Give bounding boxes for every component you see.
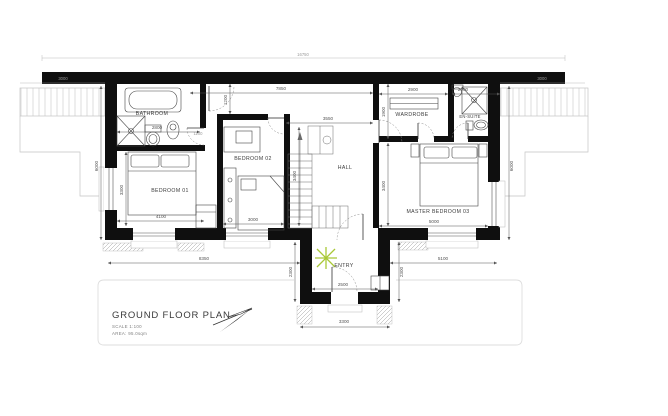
dim-bottom-left: 8350 bbox=[199, 256, 210, 261]
entry-niche bbox=[371, 276, 389, 290]
terrace-right bbox=[500, 88, 588, 196]
staircase bbox=[288, 126, 348, 228]
furniture-master-bedroom bbox=[411, 144, 487, 206]
dim-bathroom-width: 2800 bbox=[152, 125, 163, 130]
floor-plan-canvas: BATHROOM BEDROOM 01 BEDROOM 02 HALL WARD… bbox=[0, 0, 668, 416]
dim-entry-depth-right: 2300 bbox=[399, 266, 404, 277]
dim-master-width: 5000 bbox=[429, 219, 440, 224]
dim-wardrobe-width: 2900 bbox=[408, 87, 419, 92]
dim-bedroom01-width: 4100 bbox=[156, 214, 167, 219]
dim-terrace-right: 3000 bbox=[537, 76, 547, 81]
wardrobe-shelving bbox=[390, 98, 438, 109]
plan-scale: SCALE 1:100 bbox=[112, 324, 142, 329]
room-label-bedroom02: BEDROOM 02 bbox=[234, 156, 272, 162]
dim-hall-depth: 3400 bbox=[292, 170, 297, 181]
dim-bathroom-door: 1100 bbox=[193, 131, 203, 136]
dim-left-wing-width: 7850 bbox=[276, 86, 287, 91]
dim-bedroom01-depth: 3300 bbox=[119, 184, 124, 195]
room-label-ensuite: EN-SUITE bbox=[459, 114, 480, 119]
dim-hall-width: 3550 bbox=[323, 116, 334, 121]
dim-side-wing-right: 6000 bbox=[509, 160, 514, 171]
bathroom-fixtures bbox=[117, 88, 181, 146]
dim-wardrobe-depth: 1900 bbox=[381, 106, 386, 117]
dim-porch-recess: 1200 bbox=[223, 94, 228, 105]
dim-bottom-right: 5100 bbox=[438, 256, 449, 261]
furniture-bedroom02 bbox=[224, 127, 284, 230]
dim-master-depth: 3400 bbox=[381, 180, 386, 191]
room-label-entry: ENTRY bbox=[334, 263, 353, 269]
title-block: GROUND FLOOR PLAN SCALE 1:100 AREA: 95.0… bbox=[112, 310, 231, 336]
plan-area: AREA: 95.0sqm bbox=[112, 331, 147, 336]
dim-bedroom02-width: 3000 bbox=[248, 217, 259, 222]
dim-side-wing-left: 6000 bbox=[94, 160, 99, 171]
terrace-left bbox=[20, 88, 105, 196]
dim-ensuite-width: 2000 bbox=[458, 87, 469, 92]
dim-terrace-left: 3000 bbox=[58, 76, 68, 81]
dim-entry-depth-left: 2300 bbox=[288, 266, 293, 277]
room-label-bedroom01: BEDROOM 01 bbox=[151, 188, 189, 194]
dim-entry-outer-width: 3300 bbox=[339, 319, 350, 324]
plan-title: GROUND FLOOR PLAN bbox=[112, 310, 231, 321]
dim-entry-width: 2500 bbox=[338, 282, 349, 287]
room-label-master-bedroom: MASTER BEDROOM 03 bbox=[406, 209, 469, 215]
room-label-bathroom: BATHROOM bbox=[136, 111, 168, 117]
dim-overall-width: 16750 bbox=[297, 52, 309, 57]
room-label-hall: HALL bbox=[338, 165, 352, 171]
floor-plan-page: BATHROOM BEDROOM 01 BEDROOM 02 HALL WARD… bbox=[0, 0, 668, 416]
room-label-wardrobe: WARDROBE bbox=[395, 112, 428, 118]
